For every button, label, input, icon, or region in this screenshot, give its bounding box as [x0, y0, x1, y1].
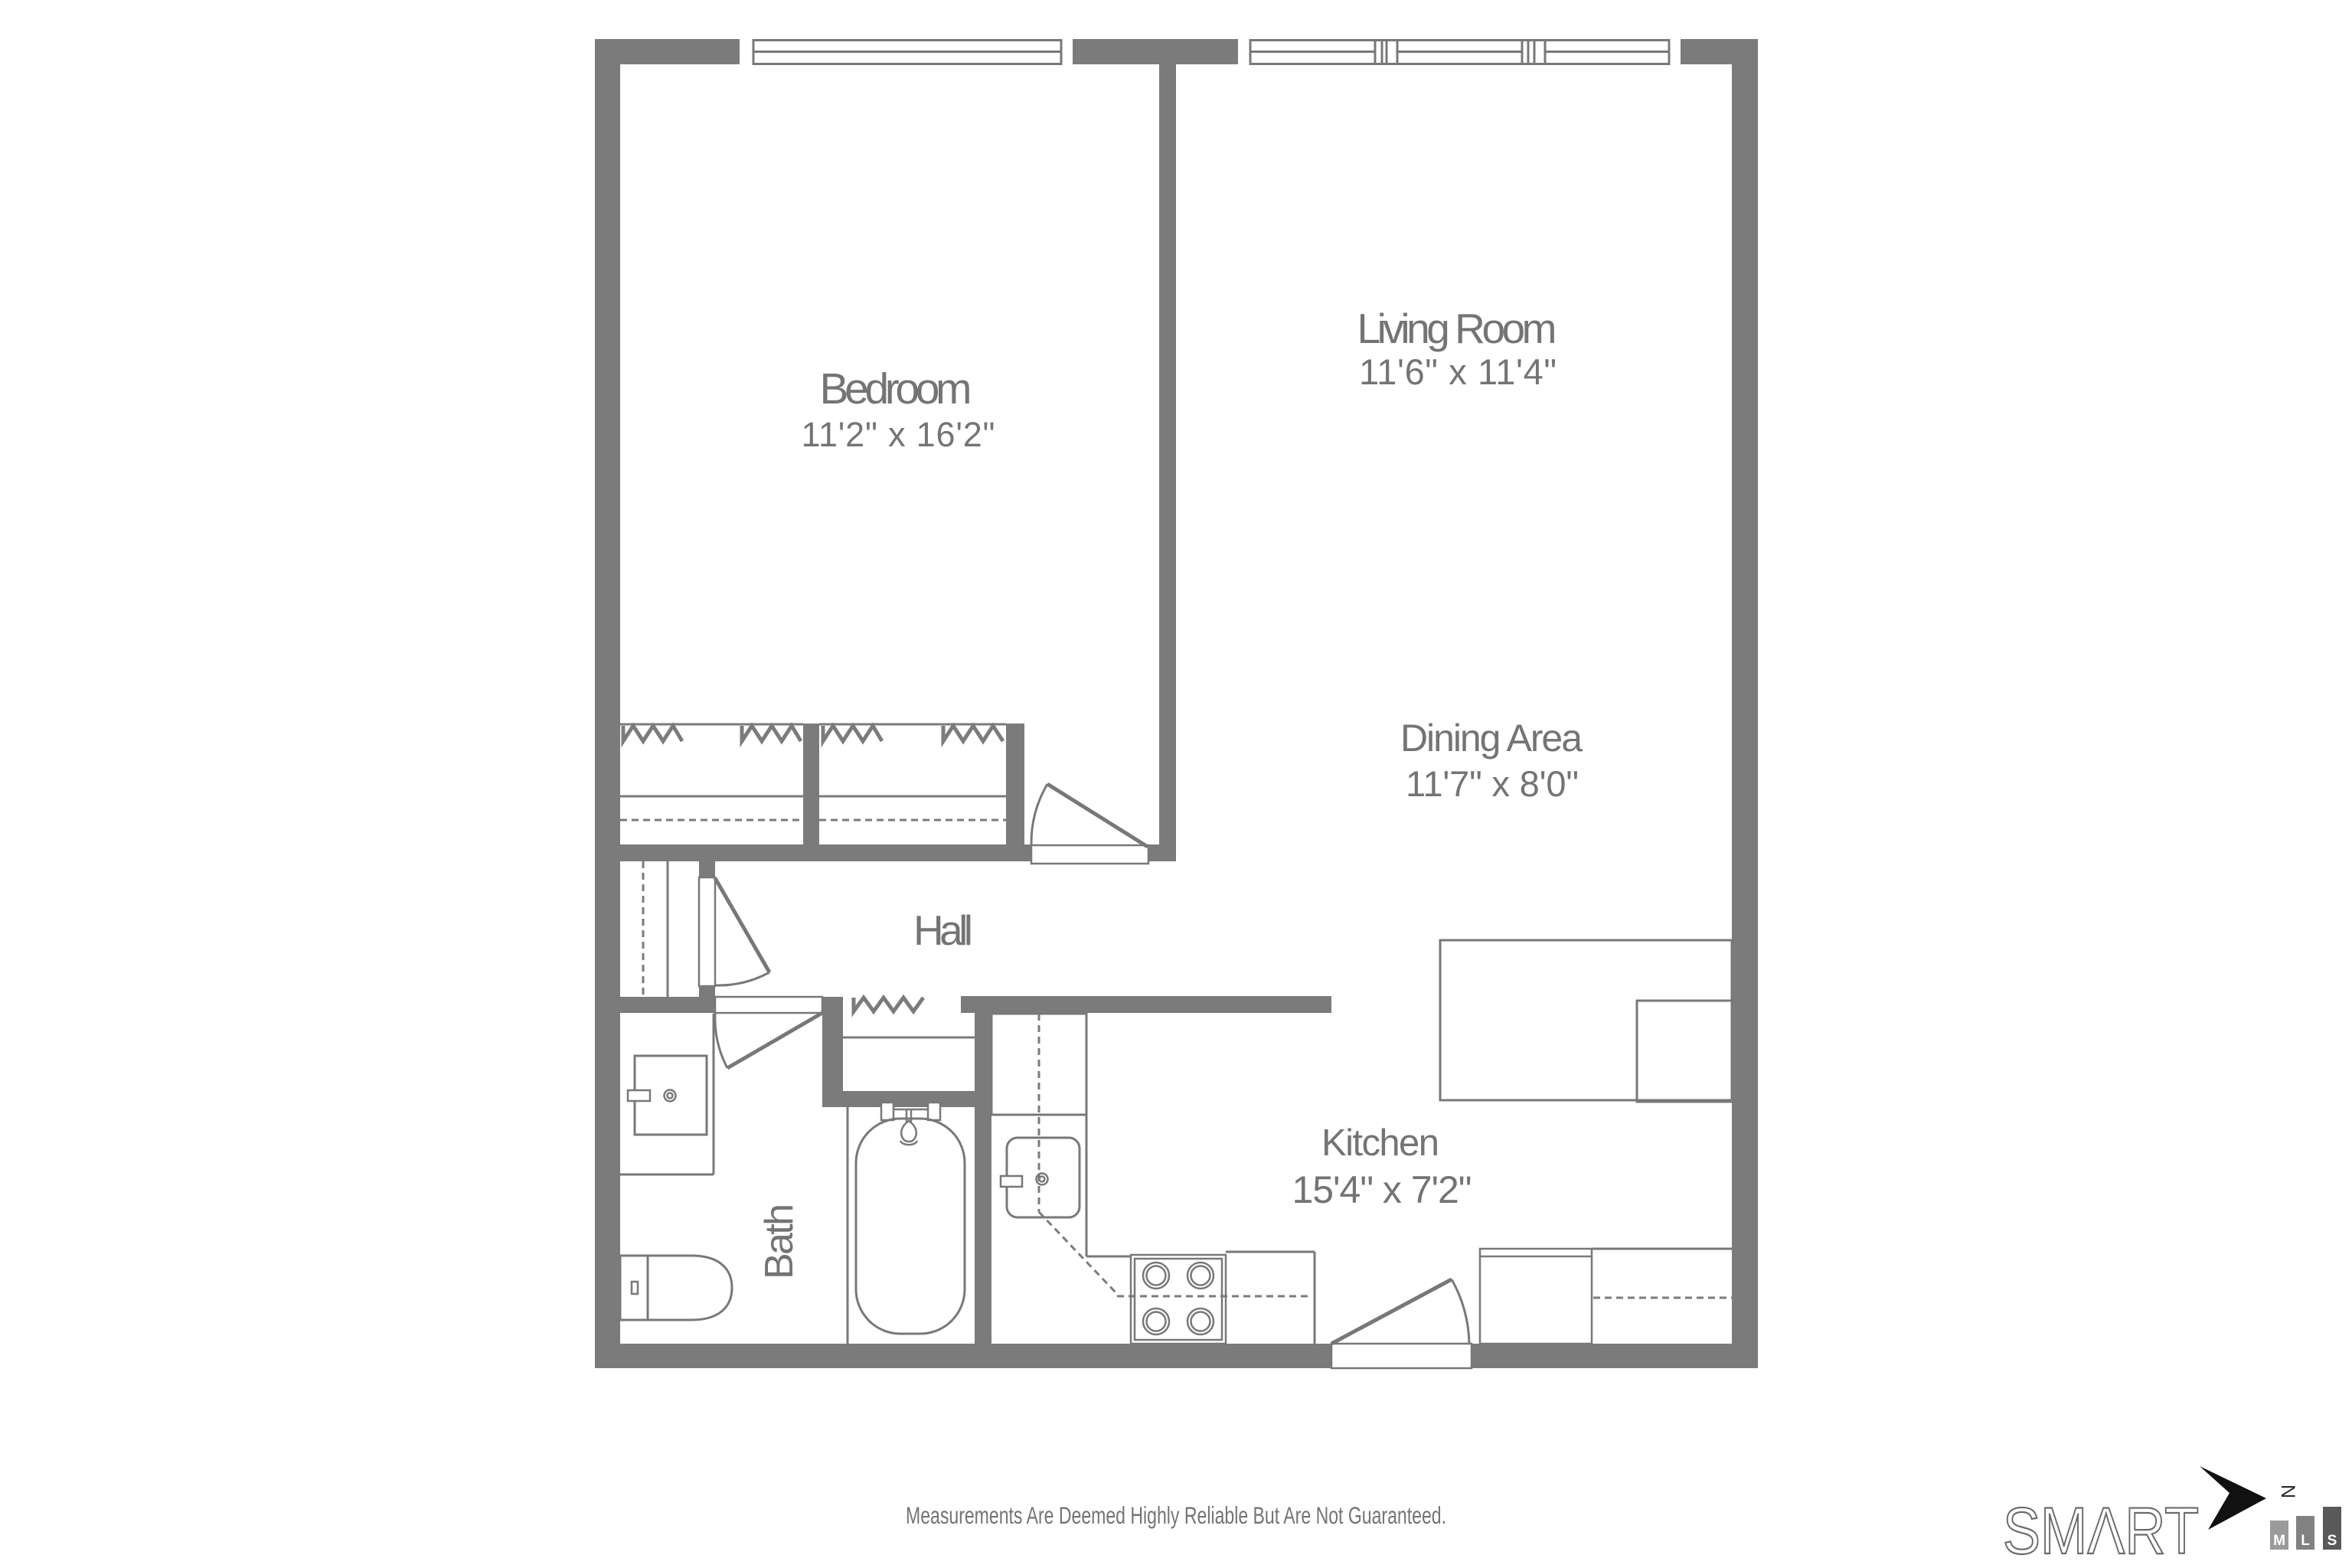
- svg-text:Kitchen: Kitchen: [1321, 1122, 1439, 1164]
- svg-text:N: N: [2277, 1485, 2298, 1498]
- svg-text:Bedroom: Bedroom: [820, 364, 972, 413]
- svg-text:11'6" x 11'4": 11'6" x 11'4": [1359, 351, 1557, 392]
- svg-text:Measurements Are Deemed Highly: Measurements Are Deemed Highly Reliable …: [906, 1501, 1446, 1529]
- svg-text:S: S: [2327, 1533, 2337, 1549]
- svg-text:Living Room: Living Room: [1357, 305, 1557, 352]
- svg-text:11'2" x 16'2": 11'2" x 16'2": [802, 415, 995, 454]
- svg-text:Bath: Bath: [757, 1204, 802, 1279]
- svg-text:11'7" x 8'0": 11'7" x 8'0": [1406, 763, 1579, 804]
- svg-text:M: M: [2273, 1533, 2285, 1549]
- svg-text:SMΛRT: SMΛRT: [2003, 1494, 2199, 1568]
- svg-text:Dining Area: Dining Area: [1400, 717, 1583, 759]
- svg-text:L: L: [2301, 1533, 2310, 1549]
- svg-text:Hall: Hall: [913, 906, 973, 954]
- svg-text:15'4" x 7'2": 15'4" x 7'2": [1292, 1168, 1472, 1211]
